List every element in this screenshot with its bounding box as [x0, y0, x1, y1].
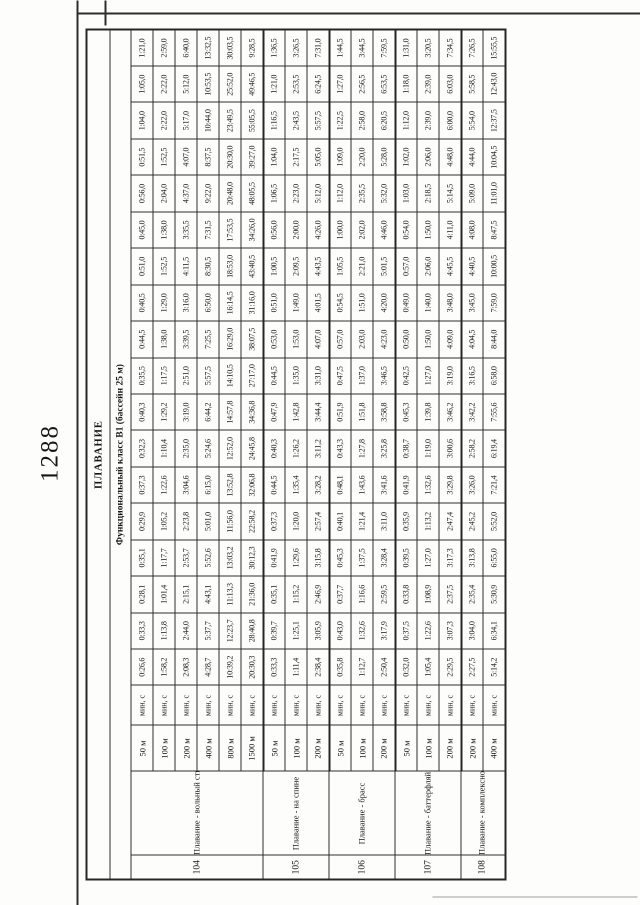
- time-cell: 0:54,0: [395, 211, 417, 247]
- time-cell: 2:53,5: [285, 66, 307, 102]
- time-cell: 6:15,0: [197, 466, 219, 502]
- time-cell: 30:12,3: [241, 539, 263, 575]
- time-cell: 11:56,0: [219, 503, 241, 539]
- time-cell: 3:28,2: [307, 466, 329, 502]
- time-cell: 0:35,1: [263, 576, 285, 612]
- table-row: 400 ммин, с4:28,75:37,74:43,15:52,65:01,…: [197, 29, 219, 879]
- time-cell: 3:26,0: [461, 466, 483, 502]
- time-cell: 1:05,0: [131, 66, 153, 102]
- unit-cell: мин, с: [461, 685, 483, 725]
- table-subtitle: Функциональный класс B1 (бассейн 25 м): [110, 29, 131, 879]
- time-cell: 34:26,0: [241, 211, 263, 247]
- table-row: 100 ммин, с1:58,21:13,81:01,41:17,71:05,…: [153, 29, 175, 879]
- time-cell: 1:12,0: [329, 175, 351, 211]
- unit-cell: мин, с: [153, 685, 175, 725]
- time-cell: 0:33,8: [395, 576, 417, 612]
- margin-rule-vertical: [76, 12, 640, 14]
- time-cell: 6:00,0: [439, 102, 461, 138]
- time-cell: 4:09,0: [439, 321, 461, 357]
- time-cell: 0:48,1: [329, 466, 351, 502]
- time-cell: 0:33,3: [131, 612, 153, 648]
- unit-cell: мин, с: [307, 685, 329, 725]
- unit-cell: мин, с: [175, 685, 197, 725]
- time-cell: 13:32,5: [197, 29, 219, 65]
- distance-cell: 100 м: [351, 725, 373, 771]
- time-cell: 2:47,4: [439, 503, 461, 539]
- swimming-standards-table: ПЛАВАНИЕФункциональный класс B1 (бассейн…: [85, 28, 506, 880]
- sport-name: Плавание - на спине: [263, 771, 329, 855]
- time-cell: 4:46,0: [373, 211, 395, 247]
- time-cell: 10:53,5: [197, 66, 219, 102]
- time-cell: 0:42,5: [395, 357, 417, 393]
- page-number: 1288: [36, 0, 64, 905]
- time-cell: 0:41,9: [395, 466, 417, 502]
- time-cell: 2:00,0: [285, 211, 307, 247]
- time-cell: 4:07,0: [175, 138, 197, 174]
- time-cell: 0:45,0: [131, 211, 153, 247]
- time-cell: 2:46,9: [307, 576, 329, 612]
- scanned-document-page: 1288 ПЛАВАНИЕФункциональный класс B1 (ба…: [0, 0, 640, 905]
- time-cell: 2:03,0: [351, 321, 373, 357]
- time-cell: 5:28,0: [373, 138, 395, 174]
- time-cell: 3:16,5: [461, 357, 483, 393]
- time-cell: 0:37,7: [329, 576, 351, 612]
- time-cell: 5:32,0: [373, 175, 395, 211]
- time-cell: 0:35,9: [395, 503, 417, 539]
- time-cell: 2:23,8: [175, 503, 197, 539]
- time-cell: 1:27,0: [417, 539, 439, 575]
- time-cell: 22:58,2: [241, 503, 263, 539]
- time-cell: 1:19,0: [417, 430, 439, 466]
- time-cell: 2:58,2: [461, 430, 483, 466]
- time-cell: 3:16,0: [175, 284, 197, 320]
- time-cell: 3:46,5: [373, 357, 395, 393]
- time-cell: 1:25,1: [285, 612, 307, 648]
- time-cell: 2:45,2: [461, 503, 483, 539]
- time-cell: 0:40,3: [131, 394, 153, 430]
- time-cell: 3:07,3: [439, 612, 461, 648]
- time-cell: 31:16,0: [241, 284, 263, 320]
- time-cell: 0:32,0: [395, 649, 417, 685]
- time-cell: 1:21,4: [351, 503, 373, 539]
- time-cell: 0:45,3: [329, 539, 351, 575]
- time-cell: 2:59,5: [373, 576, 395, 612]
- time-cell: 2:06,0: [417, 248, 439, 284]
- time-cell: 17:53,5: [219, 211, 241, 247]
- time-cell: 6:50,0: [197, 284, 219, 320]
- time-cell: 1:05,4: [417, 649, 439, 685]
- time-cell: 5:17,0: [175, 102, 197, 138]
- scan-artifact-line: [432, 896, 637, 897]
- time-cell: 2:39,0: [417, 102, 439, 138]
- time-cell: 1:03,0: [395, 175, 417, 211]
- time-cell: 6:58,0: [483, 357, 505, 393]
- distance-cell: 200 м: [461, 725, 483, 771]
- unit-cell: мин, с: [263, 685, 285, 725]
- time-cell: 4:23,0: [373, 321, 395, 357]
- group-number: 108: [461, 855, 505, 879]
- time-cell: 0:51,0: [131, 248, 153, 284]
- table-row: 105Плавание - на спине50 ммин, с0:33,30:…: [263, 29, 285, 879]
- time-cell: 1:26,2: [285, 430, 307, 466]
- time-cell: 5:05,0: [307, 138, 329, 174]
- sport-name: Плавание - вольный стиль: [131, 771, 263, 855]
- time-cell: 5:24,6: [197, 430, 219, 466]
- time-cell: 4:44,0: [461, 138, 483, 174]
- time-cell: 2:06,0: [417, 138, 439, 174]
- time-cell: 0:35,8: [329, 649, 351, 685]
- distance-cell: 200 м: [439, 725, 461, 771]
- time-cell: 8:30,5: [197, 248, 219, 284]
- time-cell: 12:23,7: [219, 612, 241, 648]
- time-cell: 16:14,5: [219, 284, 241, 320]
- time-cell: 0:39,7: [263, 612, 285, 648]
- time-cell: 12:43,0: [483, 66, 505, 102]
- time-cell: 7:59,5: [373, 29, 395, 65]
- time-cell: 2:20,0: [351, 138, 373, 174]
- table-row: 1500 ммин, с20:30,328:40,821:36,030:12,3…: [241, 29, 263, 879]
- time-cell: 6:03,0: [439, 66, 461, 102]
- table-row: 200 ммин, с2:08,32:44,02:15,12:53,72:23,…: [175, 29, 197, 879]
- time-cell: 1:53,0: [285, 321, 307, 357]
- time-cell: 1:32,6: [417, 466, 439, 502]
- time-cell: 0:40,1: [329, 503, 351, 539]
- time-cell: 13:03,2: [219, 539, 241, 575]
- time-cell: 1:29,6: [285, 539, 307, 575]
- time-cell: 2:18,5: [417, 175, 439, 211]
- time-cell: 15:55,5: [483, 29, 505, 65]
- time-cell: 3:11,0: [373, 503, 395, 539]
- time-cell: 3:17,9: [373, 612, 395, 648]
- time-cell: 3:58,8: [373, 394, 395, 430]
- time-cell: 11:01,0: [483, 175, 505, 211]
- time-cell: 5:54,0: [461, 102, 483, 138]
- time-cell: 2:59,0: [153, 29, 175, 65]
- time-cell: 1:29,2: [153, 394, 175, 430]
- time-cell: 1:12,7: [351, 649, 373, 685]
- margin-rule-horizontal: [76, 0, 78, 905]
- time-cell: 20:30,3: [241, 649, 263, 685]
- time-cell: 0:28,1: [131, 576, 153, 612]
- time-cell: 1:27,8: [351, 430, 373, 466]
- table-row: 100 ммин, с1:11,41:25,11:15,21:29,61:20,…: [285, 29, 307, 879]
- time-cell: 1:04,0: [263, 138, 285, 174]
- time-cell: 7:55,6: [483, 394, 505, 430]
- time-cell: 0:57,0: [329, 321, 351, 357]
- distance-cell: 200 м: [307, 725, 329, 771]
- time-cell: 5:52,6: [197, 539, 219, 575]
- time-cell: 1:51,8: [351, 394, 373, 430]
- time-cell: 0:40,3: [263, 430, 285, 466]
- time-cell: 4:20,0: [373, 284, 395, 320]
- time-cell: 25:52,0: [219, 66, 241, 102]
- time-cell: 0:43,0: [329, 612, 351, 648]
- time-cell: 4:07,0: [307, 321, 329, 357]
- time-cell: 0:38,7: [395, 430, 417, 466]
- time-cell: 1:35,0: [285, 357, 307, 393]
- time-cell: 5:57,5: [307, 102, 329, 138]
- time-cell: 5:58,5: [461, 66, 483, 102]
- time-cell: 0:26,6: [131, 649, 153, 685]
- time-cell: 20:30,0: [219, 138, 241, 174]
- time-cell: 3:28,4: [373, 539, 395, 575]
- time-cell: 1:44,5: [329, 29, 351, 65]
- unit-cell: мин, с: [241, 685, 263, 725]
- time-cell: 2:44,0: [175, 612, 197, 648]
- group-number: 106: [329, 855, 395, 879]
- time-cell: 0:51,0: [263, 284, 285, 320]
- time-cell: 5:30,9: [483, 576, 505, 612]
- time-cell: 1:37,0: [351, 357, 373, 393]
- time-cell: 7:21,4: [483, 466, 505, 502]
- time-cell: 3:04,6: [175, 466, 197, 502]
- time-cell: 1:16,6: [351, 576, 373, 612]
- time-cell: 4:40,5: [461, 248, 483, 284]
- time-cell: 8:37,5: [197, 138, 219, 174]
- time-cell: 1:04,0: [131, 102, 153, 138]
- distance-cell: 50 м: [395, 725, 417, 771]
- time-cell: 6:55,0: [483, 539, 505, 575]
- time-cell: 2:39,0: [417, 66, 439, 102]
- table-row: 108Плавание - комплексное200 ммин, с2:27…: [461, 29, 483, 879]
- time-cell: 2:35,0: [175, 430, 197, 466]
- time-cell: 6:40,0: [175, 29, 197, 65]
- distance-cell: 400 м: [197, 725, 219, 771]
- time-cell: 2:27,5: [461, 649, 483, 685]
- time-cell: 24:45,8: [241, 430, 263, 466]
- time-cell: 13:52,8: [219, 466, 241, 502]
- time-cell: 1:39,8: [417, 394, 439, 430]
- time-cell: 9:22,0: [197, 175, 219, 211]
- distance-cell: 100 м: [153, 725, 175, 771]
- time-cell: 3:25,8: [373, 430, 395, 466]
- time-cell: 0:35,1: [131, 539, 153, 575]
- time-cell: 5:14,5: [439, 175, 461, 211]
- time-cell: 1:21,0: [263, 66, 285, 102]
- time-cell: 2:38,4: [307, 649, 329, 685]
- time-cell: 0:49,0: [395, 284, 417, 320]
- time-cell: 0:44,5: [263, 466, 285, 502]
- time-cell: 7:31,0: [307, 29, 329, 65]
- time-cell: 16:29,0: [219, 321, 241, 357]
- time-cell: 4:11,0: [439, 211, 461, 247]
- time-cell: 0:56,0: [263, 211, 285, 247]
- sport-name: Плавание - комплексное: [461, 771, 505, 855]
- unit-cell: мин, с: [329, 685, 351, 725]
- time-cell: 4:28,7: [197, 649, 219, 685]
- time-cell: 39:27,0: [241, 138, 263, 174]
- time-cell: 1:31,0: [395, 29, 417, 65]
- time-cell: 0:47,5: [329, 357, 351, 393]
- time-cell: 1:05,5: [329, 248, 351, 284]
- time-cell: 1:00,0: [329, 211, 351, 247]
- time-cell: 1:40,0: [417, 284, 439, 320]
- time-cell: 1:10,4: [153, 430, 175, 466]
- time-cell: 1:37,5: [351, 539, 373, 575]
- time-cell: 4:43,5: [307, 248, 329, 284]
- time-cell: 6:24,5: [307, 66, 329, 102]
- table-row: 104Плавание - вольный стиль50 ммин, с0:2…: [131, 29, 153, 879]
- time-cell: 1:38,0: [153, 321, 175, 357]
- time-cell: 5:01,0: [197, 503, 219, 539]
- time-cell: 0:53,0: [263, 321, 285, 357]
- unit-cell: мин, с: [417, 685, 439, 725]
- time-cell: 18:53,0: [219, 248, 241, 284]
- time-cell: 3:42,2: [461, 394, 483, 430]
- table-row: 107Плавание - баттерфляй50 ммин, с0:32,0…: [395, 29, 417, 879]
- time-cell: 2:37,5: [439, 576, 461, 612]
- time-cell: 0:35,5: [131, 357, 153, 393]
- table-row: 400 ммин, с5:14,26:34,15:30,96:55,05:52,…: [483, 29, 505, 879]
- time-cell: 10:44,0: [197, 102, 219, 138]
- time-cell: 2:51,0: [175, 357, 197, 393]
- time-cell: 1:50,0: [417, 321, 439, 357]
- time-cell: 1:29,0: [153, 284, 175, 320]
- time-cell: 1:12,0: [395, 102, 417, 138]
- time-cell: 5:09,0: [461, 175, 483, 211]
- time-cell: 23:49,5: [219, 102, 241, 138]
- time-cell: 11:13,3: [219, 576, 241, 612]
- time-cell: 1:35,4: [285, 466, 307, 502]
- time-cell: 2:04,0: [153, 175, 175, 211]
- time-cell: 4:37,0: [175, 175, 197, 211]
- time-cell: 6:34,1: [483, 612, 505, 648]
- time-cell: 2:58,0: [351, 102, 373, 138]
- distance-cell: 50 м: [263, 725, 285, 771]
- unit-cell: мин, с: [285, 685, 307, 725]
- time-cell: 1:21,0: [131, 29, 153, 65]
- time-cell: 7:34,5: [439, 29, 461, 65]
- time-cell: 4:11,5: [175, 248, 197, 284]
- time-cell: 3:31,0: [307, 357, 329, 393]
- distance-cell: 800 м: [219, 725, 241, 771]
- time-cell: 3:04,0: [461, 612, 483, 648]
- time-cell: 2:56,5: [351, 66, 373, 102]
- unit-cell: мин, с: [197, 685, 219, 725]
- time-cell: 1:27,0: [417, 357, 439, 393]
- registration-tick: [104, 0, 106, 25]
- time-cell: 12:37,5: [483, 102, 505, 138]
- time-cell: 14:10,5: [219, 357, 241, 393]
- time-cell: 1:22,6: [417, 612, 439, 648]
- table-row: 800 ммин, с10:39,212:23,711:13,313:03,21…: [219, 29, 241, 879]
- distance-cell: 50 м: [329, 725, 351, 771]
- time-cell: 3:41,6: [373, 466, 395, 502]
- rotated-sheet: 1288 ПЛАВАНИЕФункциональный класс B1 (ба…: [0, 0, 640, 905]
- time-cell: 4:43,1: [197, 576, 219, 612]
- time-cell: 4:45,5: [439, 248, 461, 284]
- time-cell: 1:50,0: [417, 211, 439, 247]
- time-cell: 3:35,5: [175, 211, 197, 247]
- time-cell: 2:22,0: [153, 102, 175, 138]
- time-cell: 1:51,0: [351, 284, 373, 320]
- table-row: 100 ммин, с1:12,71:32,61:16,61:37,51:21,…: [351, 29, 373, 879]
- time-cell: 5:01,5: [373, 248, 395, 284]
- time-cell: 1:18,0: [395, 66, 417, 102]
- time-cell: 6:53,5: [373, 66, 395, 102]
- time-cell: 1:05,2: [153, 503, 175, 539]
- time-cell: 1:11,4: [285, 649, 307, 685]
- time-cell: 7:31,5: [197, 211, 219, 247]
- time-cell: 0:41,9: [263, 539, 285, 575]
- time-cell: 8:47,5: [483, 211, 505, 247]
- time-cell: 12:52,0: [219, 430, 241, 466]
- distance-cell: 200 м: [175, 725, 197, 771]
- time-cell: 2:35,5: [351, 175, 373, 211]
- time-cell: 43:40,5: [241, 248, 263, 284]
- time-cell: 5:57,5: [197, 357, 219, 393]
- time-cell: 1:00,5: [263, 248, 285, 284]
- time-cell: 10:04,5: [483, 138, 505, 174]
- time-cell: 2:09,5: [285, 248, 307, 284]
- time-cell: 30:03,5: [219, 29, 241, 65]
- time-cell: 2:29,5: [439, 649, 461, 685]
- time-cell: 0:57,0: [395, 248, 417, 284]
- time-cell: 48:05,5: [241, 175, 263, 211]
- table-row: 106Плавание - брасс50 ммин, с0:35,80:43,…: [329, 29, 351, 879]
- time-cell: 6:44,2: [197, 394, 219, 430]
- time-cell: 3:44,5: [351, 29, 373, 65]
- time-cell: 0:44,5: [263, 357, 285, 393]
- time-cell: 2:21,0: [351, 248, 373, 284]
- time-cell: 3:17,3: [439, 539, 461, 575]
- time-cell: 38:07,5: [241, 321, 263, 357]
- time-cell: 3:19,0: [439, 357, 461, 393]
- time-cell: 1:20,0: [285, 503, 307, 539]
- time-cell: 3:29,8: [439, 466, 461, 502]
- time-cell: 3:13,8: [461, 539, 483, 575]
- time-cell: 1:52,5: [153, 248, 175, 284]
- time-cell: 10:39,2: [219, 649, 241, 685]
- time-cell: 2:22,0: [153, 66, 175, 102]
- time-cell: 4:04,5: [461, 321, 483, 357]
- time-cell: 0:37,5: [395, 612, 417, 648]
- time-cell: 0:29,9: [131, 503, 153, 539]
- time-cell: 49:46,5: [241, 66, 263, 102]
- table-row: 200 ммин, с2:29,53:07,32:37,53:17,32:47,…: [439, 29, 461, 879]
- sport-name: Плавание - брасс: [329, 771, 395, 855]
- time-cell: 1:49,0: [285, 284, 307, 320]
- time-cell: 1:27,0: [329, 66, 351, 102]
- distance-cell: 50 м: [131, 725, 153, 771]
- time-cell: 1:16,5: [263, 102, 285, 138]
- time-cell: 1:43,6: [351, 466, 373, 502]
- time-cell: 0:51,5: [131, 138, 153, 174]
- time-cell: 3:48,0: [439, 284, 461, 320]
- time-cell: 5:52,0: [483, 503, 505, 539]
- time-cell: 2:35,4: [461, 576, 483, 612]
- time-cell: 0:44,5: [131, 321, 153, 357]
- time-cell: 34:36,8: [241, 394, 263, 430]
- time-cell: 2:15,1: [175, 576, 197, 612]
- time-cell: 3:45,0: [461, 284, 483, 320]
- time-cell: 6:20,5: [373, 102, 395, 138]
- distance-cell: 1500 м: [241, 725, 263, 771]
- time-cell: 1:08,9: [417, 576, 439, 612]
- time-cell: 5:12,0: [307, 175, 329, 211]
- time-cell: 0:33,3: [263, 649, 285, 685]
- time-cell: 3:00,6: [439, 430, 461, 466]
- time-cell: 27:17,0: [241, 357, 263, 393]
- time-cell: 0:32,3: [131, 430, 153, 466]
- time-cell: 0:45,3: [395, 394, 417, 430]
- time-cell: 1:17,7: [153, 539, 175, 575]
- time-cell: 3:44,4: [307, 394, 329, 430]
- time-cell: 0:37,3: [131, 466, 153, 502]
- time-cell: 9:28,5: [241, 29, 263, 65]
- time-cell: 6:19,4: [483, 430, 505, 466]
- time-cell: 0:56,0: [131, 175, 153, 211]
